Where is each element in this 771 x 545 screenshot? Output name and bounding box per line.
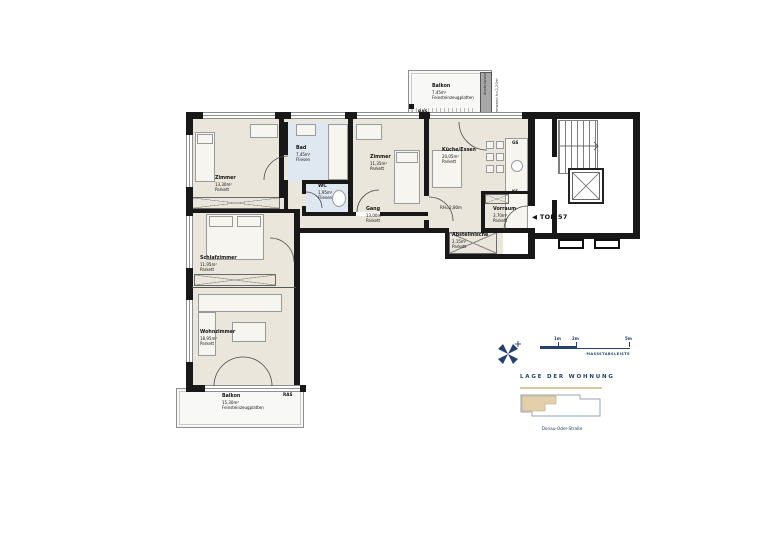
room-label-kueche: Küche/Essen 20,05m² Parkett bbox=[442, 148, 476, 164]
room-floor: Feinsteinzeugplatten bbox=[222, 405, 264, 410]
room-floor: Parkett bbox=[452, 244, 488, 249]
scale-bar-caption: MASSSTABSLEISTE bbox=[540, 352, 630, 356]
room-label-balkon-sued: Balkon 15,30m² Feinsteinzeugplatten bbox=[222, 394, 264, 410]
scale-bar-thick bbox=[540, 346, 577, 349]
location-divider bbox=[520, 387, 602, 389]
floor-plan-page: Abstellplatz Trennwand h=2,20m RAS RAS G… bbox=[0, 0, 771, 545]
room-label-balkon-nord: Balkon 7,45m² Feinsteinzeugplatten bbox=[432, 84, 474, 100]
room-label-wc: WC 1,95m² Fliesen bbox=[318, 184, 332, 200]
room-label-schlafzimmer: Schlafzimmer 11,95m² Parkett bbox=[200, 256, 237, 272]
room-label-bad: Bad 7,45m² Fliesen bbox=[296, 146, 310, 162]
compass-icon bbox=[494, 340, 522, 368]
room-label-vorraum: Vorraum 3,70m² Parkett bbox=[493, 207, 516, 223]
door-arcs-overlay bbox=[0, 0, 771, 545]
room-label-zimmer-ost: Zimmer 11,35m² Parkett bbox=[370, 155, 391, 171]
scale-tick-label-5m: 5m bbox=[625, 336, 632, 341]
room-floor: Parkett bbox=[215, 187, 236, 192]
scale-tick bbox=[629, 342, 630, 347]
room-floor: Parkett bbox=[366, 218, 383, 223]
room-floor: Parkett bbox=[370, 166, 391, 171]
room-label-abstellnische: Abstellnische 2,15m² Parkett bbox=[452, 233, 488, 249]
room-floor: Parkett bbox=[493, 218, 516, 223]
scale-bar-thin bbox=[577, 348, 630, 349]
room-floor: Fliesen bbox=[318, 195, 332, 200]
room-label-zimmer-west: Zimmer 13,30m² Parkett bbox=[215, 176, 236, 192]
room-floor: Parkett bbox=[442, 159, 476, 164]
scale-bar: 1m 2m 5m MASSSTABSLEISTE bbox=[540, 336, 634, 362]
room-label-wohnzimmer: Wohnzimmer 18,95m² Parkett bbox=[200, 330, 235, 346]
unit-number-label: ◀ TOP 57 bbox=[532, 213, 568, 221]
scale-tick-label-1m: 1m bbox=[554, 336, 561, 341]
location-title: LAGE DER WOHNUNG bbox=[520, 374, 615, 380]
room-floor: Parkett bbox=[200, 267, 237, 272]
room-height-note: RH=2,80m bbox=[440, 206, 462, 210]
room-floor: Parkett bbox=[200, 341, 235, 346]
room-floor: Fliesen bbox=[296, 157, 310, 162]
room-floor: Feinsteinzeugplatten bbox=[432, 95, 474, 100]
scale-tick-label-2m: 2m bbox=[572, 336, 579, 341]
site-plan-diagram bbox=[518, 392, 606, 424]
site-street-label: Donau-Oder-Straße bbox=[518, 426, 606, 431]
room-label-gang: Gang 13,00m² Parkett bbox=[366, 207, 383, 223]
